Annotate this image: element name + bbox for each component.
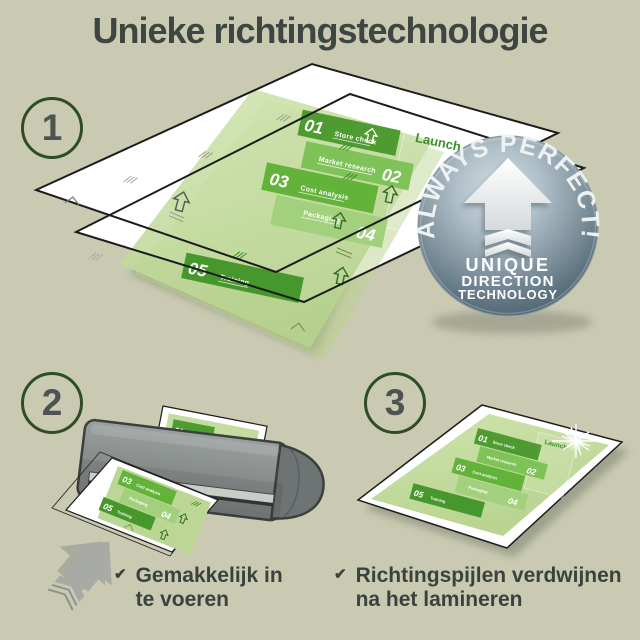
checklist-text-line: na het lamineren: [356, 588, 622, 612]
checklist-text-line: Richtingspijlen verdwijnen: [356, 564, 622, 588]
checklist-item-arrows-disappear: ✔ Richtingspijlen verdwijnen na het lami…: [334, 564, 622, 611]
checklist-text-line: te voeren: [136, 588, 283, 612]
step-circle-3: 3: [364, 372, 426, 434]
page-title: Unieke richtingstechnologie: [0, 10, 640, 52]
step-number: 1: [42, 107, 63, 149]
checkmark-icon: ✔: [114, 564, 127, 611]
checkmark-icon: ✔: [334, 564, 347, 611]
step-circle-1: 1: [21, 97, 83, 159]
badge-line-unique: UNIQUE: [465, 255, 550, 275]
doc-block-number: 01: [303, 116, 325, 139]
watermark-mark: [89, 252, 103, 262]
step-number: 2: [42, 382, 63, 424]
infographic-page: Launch 01 Store check Market research 02…: [0, 0, 640, 640]
step-number: 3: [385, 382, 406, 424]
infographic-illustration: Launch 01 Store check Market research 02…: [0, 0, 640, 640]
checklist-text-line: Gemakkelijk in: [136, 564, 283, 588]
badge-line-technology: TECHNOLOGY: [458, 287, 558, 302]
always-perfect-badge: ALWAYS PERFECT! UNIQUE DIRECTION TECHNOL…: [412, 130, 605, 334]
checklist-item-easy-feed: ✔ Gemakkelijk in te voeren: [114, 564, 283, 611]
step-circle-2: 2: [21, 372, 83, 434]
